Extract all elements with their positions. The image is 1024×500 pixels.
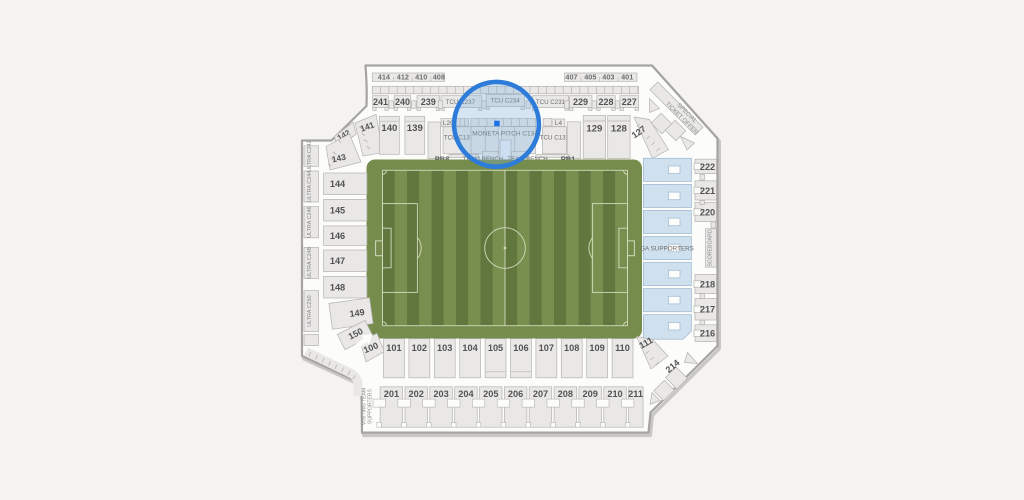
svg-text:407: 407 xyxy=(565,73,577,82)
svg-text:403: 403 xyxy=(602,73,614,82)
svg-text:110: 110 xyxy=(615,343,630,353)
svg-text:ULTRA C246: ULTRA C246 xyxy=(307,207,313,238)
svg-text:210: 210 xyxy=(607,389,622,399)
svg-text:144: 144 xyxy=(330,179,346,189)
svg-text:L4: L4 xyxy=(555,120,563,127)
svg-text:140: 140 xyxy=(381,123,397,134)
svg-text:204: 204 xyxy=(458,389,474,399)
svg-text:240: 240 xyxy=(395,97,410,107)
svg-text:149: 149 xyxy=(349,307,365,319)
svg-text:208: 208 xyxy=(558,389,573,399)
svg-text:105: 105 xyxy=(488,343,503,353)
svg-text:239: 239 xyxy=(421,97,436,107)
svg-text:108: 108 xyxy=(564,343,579,353)
svg-text:205: 205 xyxy=(483,389,498,399)
svg-text:405: 405 xyxy=(584,73,596,82)
svg-text:145: 145 xyxy=(330,206,345,216)
svg-text:229: 229 xyxy=(573,97,588,107)
svg-text:148: 148 xyxy=(330,283,345,293)
svg-text:221: 221 xyxy=(700,186,715,196)
svg-text:217: 217 xyxy=(700,305,715,315)
svg-text:128: 128 xyxy=(611,124,628,135)
svg-text:218: 218 xyxy=(700,279,715,289)
svg-text:104: 104 xyxy=(462,343,478,353)
svg-text:227: 227 xyxy=(622,97,637,107)
svg-text:ULTRA C248: ULTRA C248 xyxy=(307,247,313,278)
svg-text:222: 222 xyxy=(700,162,715,172)
svg-text:ULTRA C244: ULTRA C244 xyxy=(307,171,313,202)
svg-text:SCOREBOARD: SCOREBOARD xyxy=(707,229,713,266)
svg-text:SUPPORTERS: SUPPORTERS xyxy=(367,388,373,424)
svg-text:109: 109 xyxy=(589,343,604,353)
svg-text:401: 401 xyxy=(621,73,633,82)
svg-text:101: 101 xyxy=(386,343,401,353)
svg-text:107: 107 xyxy=(539,343,554,353)
svg-text:408: 408 xyxy=(433,73,445,82)
svg-text:147: 147 xyxy=(330,256,345,266)
svg-text:ULTRA C250: ULTRA C250 xyxy=(307,295,313,326)
svg-text:ULTRA C242: ULTRA C242 xyxy=(307,140,313,171)
svg-text:228: 228 xyxy=(598,97,613,107)
svg-text:146: 146 xyxy=(330,231,345,241)
svg-text:202: 202 xyxy=(409,389,424,399)
svg-text:GA SUPPORTERS: GA SUPPORTERS xyxy=(640,246,694,253)
svg-text:139: 139 xyxy=(407,123,423,134)
svg-text:TCU C131: TCU C131 xyxy=(540,134,570,141)
svg-text:102: 102 xyxy=(412,343,427,353)
svg-text:207: 207 xyxy=(533,389,548,399)
svg-text:201: 201 xyxy=(384,389,399,399)
svg-text:211: 211 xyxy=(628,389,643,399)
svg-text:241: 241 xyxy=(373,97,388,107)
svg-text:410: 410 xyxy=(415,73,427,82)
svg-text:414: 414 xyxy=(378,73,391,82)
svg-text:220: 220 xyxy=(700,207,715,217)
svg-text:103: 103 xyxy=(437,343,452,353)
svg-text:106: 106 xyxy=(513,343,528,353)
svg-text:412: 412 xyxy=(397,73,409,82)
svg-text:TCU C231: TCU C231 xyxy=(536,99,566,106)
svg-text:216: 216 xyxy=(700,329,715,339)
svg-text:203: 203 xyxy=(433,389,448,399)
svg-text:209: 209 xyxy=(583,389,598,399)
svg-text:206: 206 xyxy=(508,389,523,399)
svg-text:129: 129 xyxy=(586,124,602,135)
